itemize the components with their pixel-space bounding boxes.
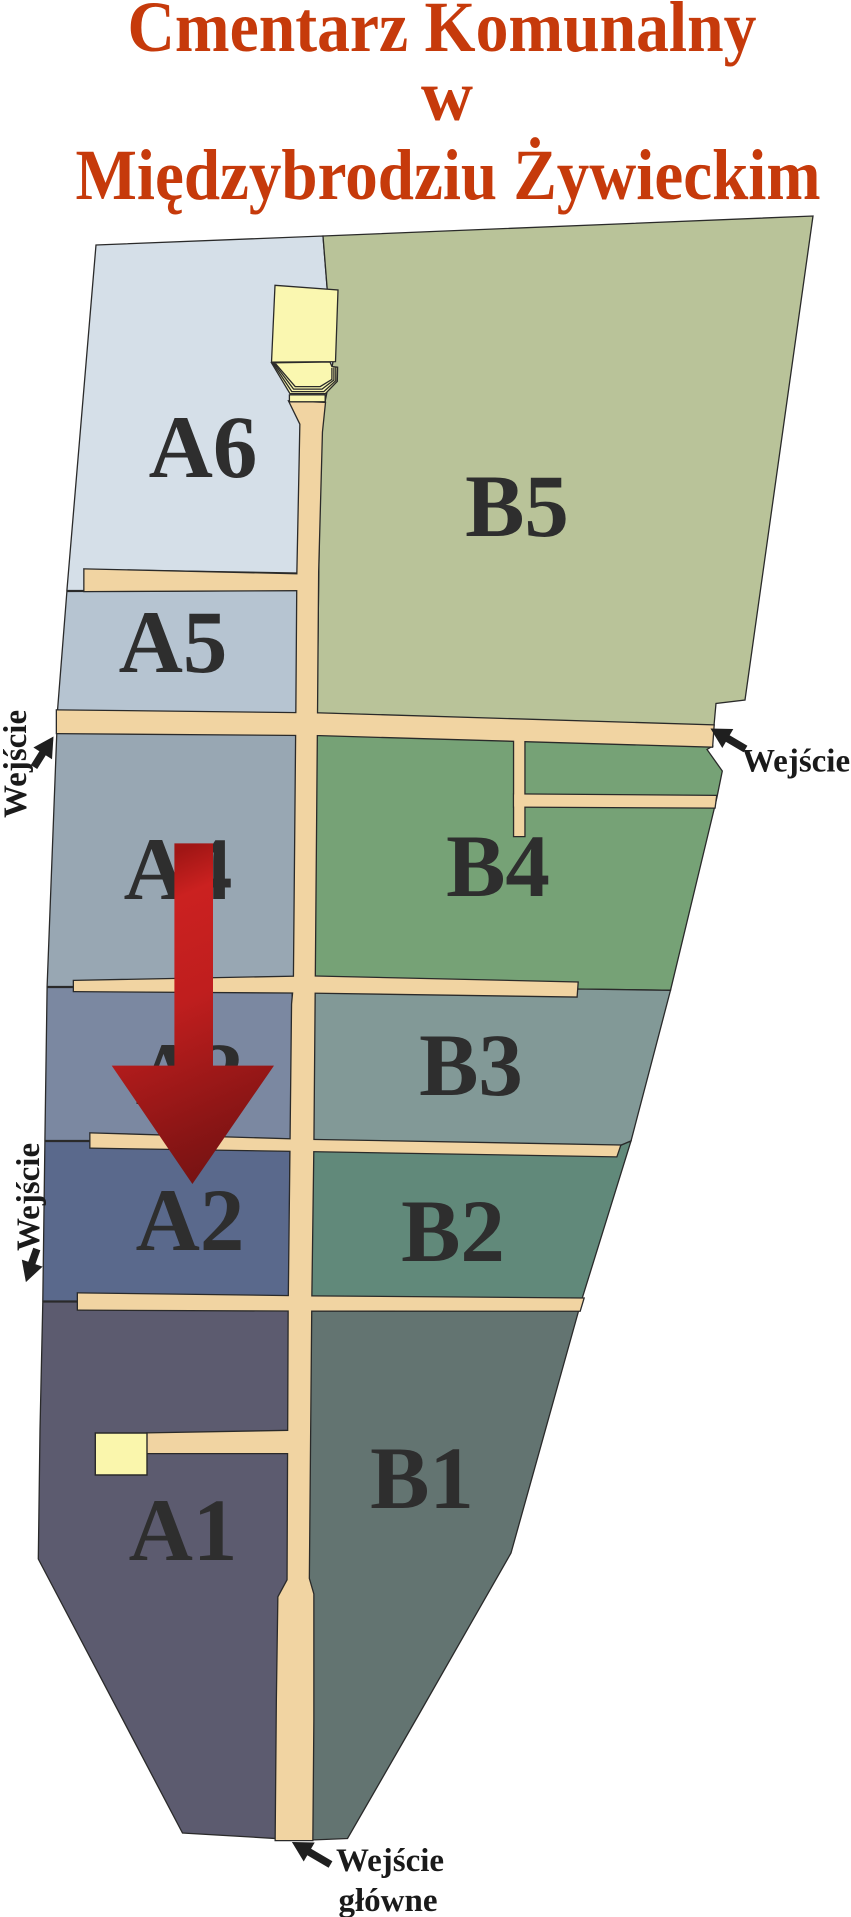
svg-text:B1: B1: [370, 1430, 474, 1528]
svg-text:A6: A6: [149, 399, 258, 497]
svg-text:B4: B4: [446, 818, 550, 916]
svg-text:B2: B2: [401, 1183, 505, 1281]
svg-text:Międzybrodziu Żywieckim: Międzybrodziu Żywieckim: [76, 135, 821, 215]
svg-text:B5: B5: [465, 458, 569, 556]
svg-text:Wejście: Wejście: [11, 1143, 47, 1251]
svg-text:w: w: [421, 56, 473, 136]
svg-text:A5: A5: [119, 594, 228, 692]
svg-text:A1: A1: [129, 1482, 238, 1580]
svg-text:B3: B3: [419, 1017, 523, 1115]
svg-text:Wejście: Wejście: [0, 710, 34, 818]
svg-text:Wejście: Wejście: [336, 1843, 444, 1879]
svg-text:główne: główne: [339, 1883, 438, 1917]
svg-text:Wejście: Wejście: [742, 744, 850, 780]
svg-text:A2: A2: [136, 1172, 245, 1270]
